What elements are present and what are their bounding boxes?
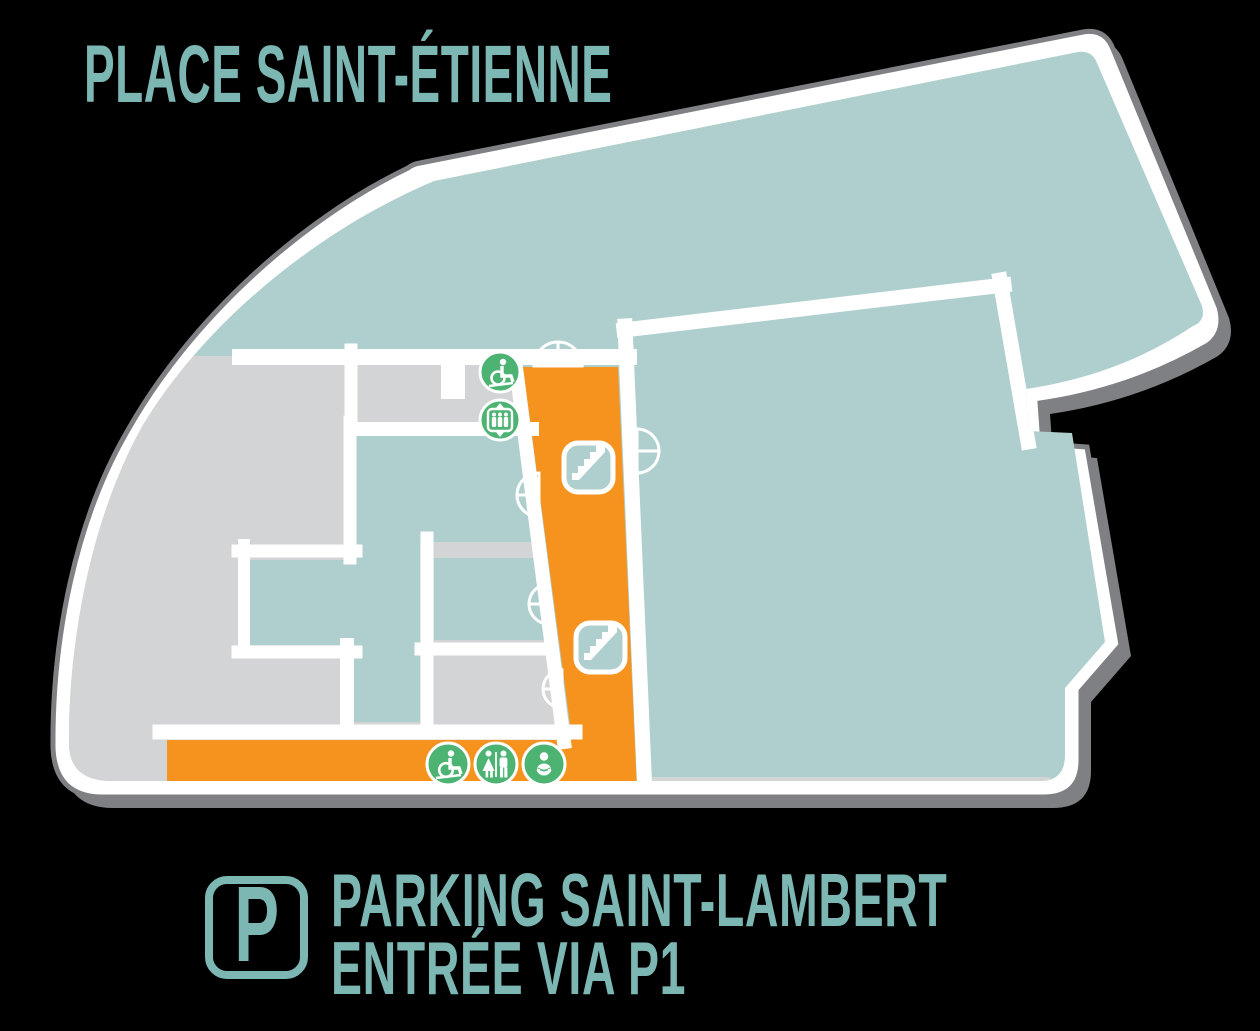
stairs-icon-upper [564,443,613,492]
toilets-icon [475,743,517,785]
wheelchair-access-icon [480,352,520,392]
floor-plan-svg: PLACE SAINT-ÉTIENNE P PARKING SAINT-LAMB… [0,0,1260,1031]
parking-badge-letter: P [234,865,279,985]
elevator-icon [480,400,520,440]
accessible-toilet-icon [427,743,469,785]
parking-legend: P PARKING SAINT-LAMBERT ENTRÉE VIA P1 [209,860,947,1011]
baby-changing-icon [523,743,565,785]
page-title: PLACE SAINT-ÉTIENNE [84,28,612,121]
floor-plan-page: PLACE SAINT-ÉTIENNE P PARKING SAINT-LAMB… [0,0,1260,1031]
parking-legend-line2: ENTRÉE VIA P1 [331,927,686,1011]
stairs-icon-lower [576,623,625,672]
side-room [434,558,552,640]
